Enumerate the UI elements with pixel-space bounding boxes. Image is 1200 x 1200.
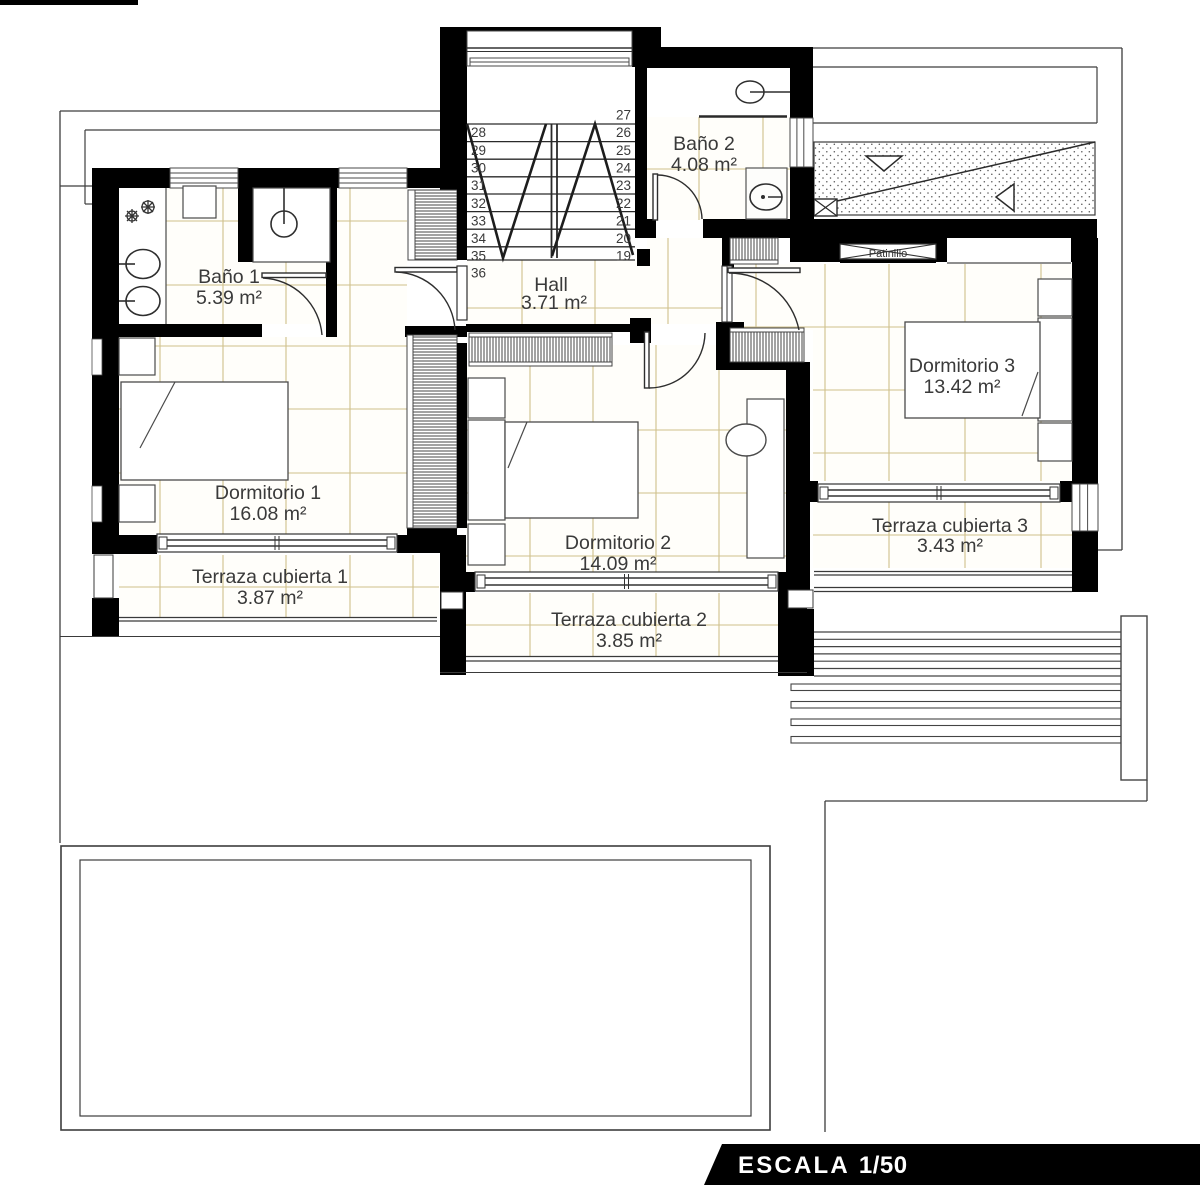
svg-text:21: 21	[616, 214, 631, 229]
svg-text:14.09 m²: 14.09 m²	[580, 553, 657, 575]
svg-text:23: 23	[616, 178, 631, 193]
svg-text:20: 20	[616, 231, 631, 246]
svg-text:27: 27	[616, 108, 631, 123]
svg-text:31: 31	[471, 178, 486, 193]
svg-text:Baño 1: Baño 1	[198, 266, 260, 288]
svg-text:3.85 m²: 3.85 m²	[596, 630, 663, 652]
svg-text:3.87 m²: 3.87 m²	[237, 587, 304, 609]
svg-text:Dormitorio 1: Dormitorio 1	[215, 482, 321, 504]
svg-text:25: 25	[616, 143, 631, 158]
svg-text:29: 29	[471, 143, 486, 158]
svg-text:19: 19	[616, 249, 631, 264]
svg-text:34: 34	[471, 231, 487, 246]
svg-text:26: 26	[616, 125, 631, 140]
svg-text:3.71 m²: 3.71 m²	[521, 292, 588, 314]
svg-text:13.42 m²: 13.42 m²	[924, 376, 1001, 398]
svg-text:Baño 2: Baño 2	[673, 133, 735, 155]
svg-text:35: 35	[471, 249, 486, 264]
svg-text:32: 32	[471, 196, 486, 211]
svg-text:Patinillo: Patinillo	[869, 248, 908, 260]
svg-text:33: 33	[471, 214, 486, 229]
svg-text:28: 28	[471, 125, 486, 140]
svg-text:ESCALA1/50: ESCALA1/50	[738, 1152, 908, 1179]
svg-text:36: 36	[471, 266, 486, 281]
svg-text:4.08 m²: 4.08 m²	[671, 154, 738, 176]
svg-text:22: 22	[616, 196, 631, 211]
svg-text:30: 30	[471, 161, 486, 176]
svg-text:16.08 m²: 16.08 m²	[230, 503, 307, 525]
svg-text:Dormitorio 2: Dormitorio 2	[565, 532, 671, 554]
svg-text:5.39 m²: 5.39 m²	[196, 287, 263, 309]
svg-text:24: 24	[616, 161, 632, 176]
svg-text:Terraza cubierta 1: Terraza cubierta 1	[192, 566, 348, 588]
svg-text:Dormitorio 3: Dormitorio 3	[909, 355, 1015, 377]
svg-text:Terraza cubierta 3: Terraza cubierta 3	[872, 515, 1028, 537]
svg-text:3.43 m²: 3.43 m²	[917, 535, 984, 557]
svg-text:Terraza cubierta 2: Terraza cubierta 2	[551, 609, 707, 631]
